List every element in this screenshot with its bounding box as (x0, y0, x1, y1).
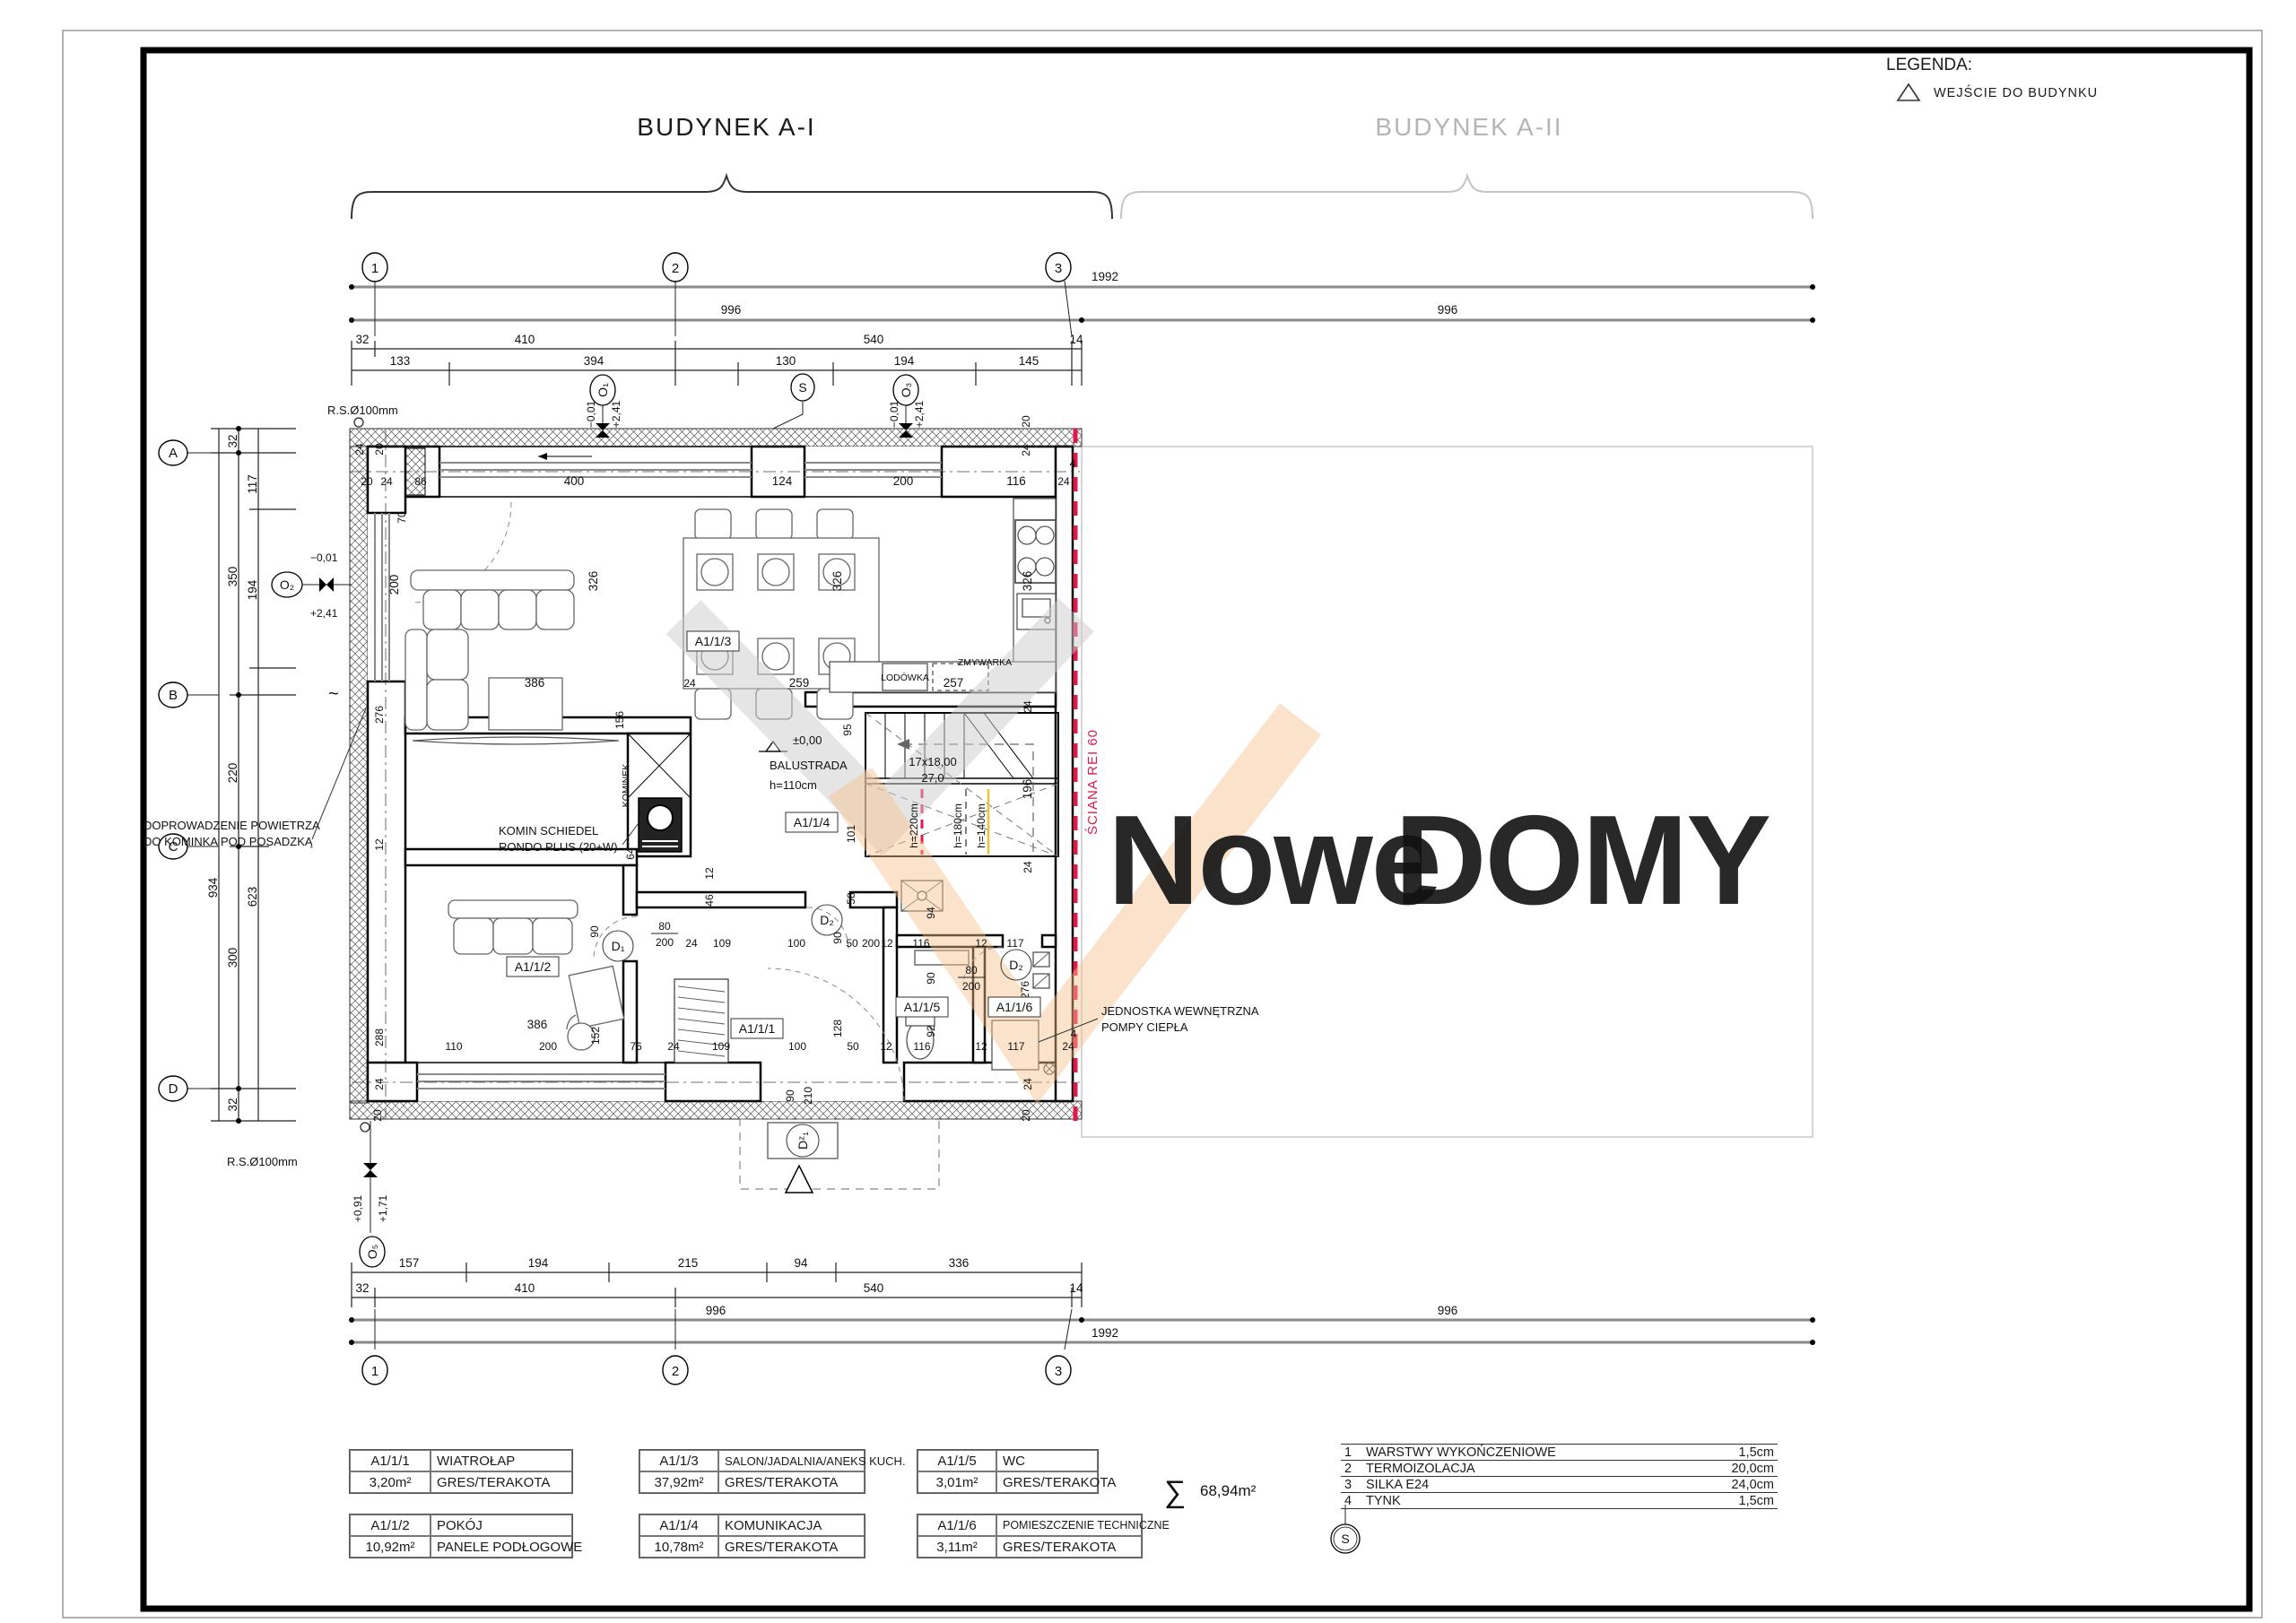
dim-label: 24 (1022, 700, 1034, 713)
room-table-a114: A1/1/4 KOMUNIKACJA 10,78m² GRES/TERAKOTA (639, 1514, 865, 1558)
window-marker-o1: O₁ (596, 383, 610, 397)
dim-label: 336 (949, 1256, 970, 1270)
room-area: 3,11m² (918, 1536, 996, 1558)
level-label: −0,01 (310, 551, 338, 564)
layer-value: 1,5cm (1711, 1445, 1778, 1460)
room-code: A1/1/2 (350, 1515, 430, 1536)
building-a2-title: BUDYNEK A-II (1290, 113, 1648, 142)
dim-label: 116 (912, 937, 929, 950)
door-marker-d2b: D₂ (1009, 958, 1023, 972)
dim-label: 288 (373, 1028, 386, 1046)
room-floor: GRES/TERAKOTA (996, 1471, 1098, 1493)
watermark-text-orange: DOMY (1395, 789, 1770, 932)
dim-label: 90 (831, 932, 844, 944)
door-marker-dz1: Dᶻ₁ (796, 1132, 810, 1150)
dim-label: 24 (1057, 475, 1070, 488)
dim-label: 157 (399, 1256, 420, 1270)
dim-label: 50 (846, 937, 858, 950)
dim-label: 152 (589, 1027, 602, 1045)
layer-value: 24,0cm (1711, 1478, 1778, 1492)
dishwasher-label: ZMYWARKA (958, 657, 1012, 668)
dim-label: 12 (975, 937, 987, 950)
dim-label: 101 (845, 825, 857, 843)
dim-label: 200 (893, 474, 914, 488)
room-label-a112: A1/1/2 (515, 959, 552, 974)
section-marker-s-bottom: S (1341, 1532, 1349, 1546)
dim-label: 623 (246, 887, 259, 907)
layer-name: TYNK (1366, 1494, 1711, 1508)
dim-label: 386 (525, 676, 545, 690)
dim-label: 20 (1020, 1109, 1032, 1122)
dim-label: 1992 (1091, 1326, 1118, 1340)
dim-label: 14 (1069, 1281, 1083, 1295)
level-label: +0,91 (352, 1194, 364, 1222)
dim-label: 90 (925, 972, 937, 985)
room-code: A1/1/1 (350, 1450, 430, 1471)
dim-label: 300 (226, 948, 239, 968)
dim-label: 70 (396, 511, 408, 524)
legend-title: LEGENDA: (1886, 56, 1972, 75)
dim-label: 110 (445, 1040, 462, 1053)
room-floor: GRES/TERAKOTA (430, 1471, 572, 1493)
dim-label: 996 (706, 1304, 726, 1317)
dim-label: 12 (975, 1040, 987, 1053)
room-name: KOMUNIKACJA (718, 1515, 865, 1536)
layer-row: 3 SILKA E24 24,0cm (1341, 1476, 1778, 1492)
dim-label: 12 (373, 838, 386, 851)
room-name: SALON/JADALNIA/ANEKS KUCH. (718, 1450, 865, 1471)
dim-label: 124 (772, 474, 793, 488)
dim-label: 130 (776, 354, 796, 368)
axis-col-3: 3 (1055, 261, 1062, 276)
layer-value: 1,5cm (1711, 1494, 1778, 1508)
door-marker-d2a: D₂ (820, 913, 834, 927)
window-marker-o2: O₂ (280, 577, 294, 592)
dim-label: 133 (390, 354, 411, 368)
watermark-text-gray: Nowe (1108, 789, 1440, 932)
dim-label: 32 (355, 333, 369, 346)
level-label: +1,71 (377, 1194, 389, 1222)
dim-label: 276 (373, 706, 386, 724)
dim-label: 996 (1438, 303, 1458, 317)
rei-wall-label: ŚCIANA REI 60 (1084, 729, 1100, 835)
layer-row: 4 TYNK 1,5cm (1341, 1492, 1778, 1509)
dim-label: 540 (864, 1281, 884, 1295)
dim-label: 90 (784, 1089, 796, 1102)
dim-label: 200 (387, 575, 401, 595)
kominek-label: KOMINEK (621, 764, 631, 807)
axis-col-3b: 3 (1055, 1364, 1062, 1379)
air-supply-note-line1: DOPROWADZENIE POWIETRZA (143, 819, 320, 832)
dim-label: 24 (1022, 861, 1034, 873)
legend-triangle-icon (1891, 79, 1926, 106)
layer-row: 2 TERMOIZOLACJA 20,0cm (1341, 1460, 1778, 1476)
dim-label: 100 (788, 1040, 806, 1053)
axis-row-d: D (169, 1081, 178, 1097)
dim-label: 20 (1020, 415, 1032, 428)
dim-label: 200 (656, 936, 674, 949)
legend-entry: WEJŚCIE DO BUDYNKU (1934, 86, 2098, 100)
room-code: A1/1/5 (918, 1450, 996, 1471)
dim-label: 24 (380, 475, 393, 488)
dim-label: 20 (371, 1109, 384, 1122)
layer-name: WARSTWY WYKOŃCZENIOWE (1366, 1445, 1711, 1460)
dim-label: 386 (527, 1018, 548, 1031)
dim-label: 276 (1019, 981, 1031, 999)
room-floor: GRES/TERAKOTA (718, 1536, 865, 1558)
headroom-180: h=180cm (952, 803, 964, 848)
dim-label: 86 (414, 475, 427, 488)
dim-label: 220 (226, 763, 239, 784)
dim-label: 934 (206, 877, 220, 898)
layer-no: 4 (1341, 1494, 1366, 1508)
room-label-a116: A1/1/6 (996, 1000, 1033, 1014)
dim-label: 46 (703, 894, 716, 907)
dim-label: 194 (894, 354, 915, 368)
dim-label: 996 (721, 303, 742, 317)
komin-note-line1: KOMIN SCHIEDEL (499, 824, 598, 838)
komin-note-line2: RONDO PLUS (20+W) (499, 840, 618, 854)
room-table-a116: A1/1/6 POMIESZCZENIE TECHNICZNE 3,11m² G… (917, 1514, 1143, 1558)
entrance-triangle-icon (786, 1166, 813, 1193)
room-label-a114: A1/1/4 (794, 815, 831, 829)
axis-col-1: 1 (371, 261, 378, 276)
layer-name: SILKA E24 (1366, 1478, 1711, 1492)
dim-label: 116 (1006, 474, 1026, 488)
room-floor: GRES/TERAKOTA (718, 1471, 865, 1493)
level-label: +2,41 (310, 607, 338, 620)
dim-label: 996 (1438, 1304, 1458, 1317)
dim-label: 80 (965, 964, 978, 976)
dim-label: 58 (845, 892, 857, 905)
room-name: WC (996, 1450, 1098, 1471)
room-table-a115: A1/1/5 WC 3,01m² GRES/TERAKOTA (917, 1449, 1099, 1494)
air-supply-note-line2: DO KOMINKA POD POSADZKĄ (143, 835, 313, 848)
layer-no: 1 (1341, 1445, 1366, 1460)
fridge-label: LODÓWKA (881, 672, 929, 683)
dim-label: 20 (373, 443, 386, 456)
dim-label: 259 (789, 676, 810, 690)
layer-value: 20,0cm (1711, 1462, 1778, 1476)
balustrada-height: h=110cm (770, 778, 817, 792)
axis-row-b: B (169, 688, 178, 703)
entrance (740, 1119, 939, 1193)
brace-building-a2 (1121, 176, 1813, 219)
dim-label: 350 (226, 567, 239, 587)
dim-label: 32 (226, 1098, 239, 1111)
dim-label: 410 (515, 1281, 535, 1295)
dim-label: 194 (246, 579, 259, 600)
door-marker-d1: D₁ (612, 939, 625, 953)
room-table-a113: A1/1/3 SALON/JADALNIA/ANEKS KUCH. 37,92m… (639, 1449, 865, 1494)
dim-label: 24 (373, 1078, 386, 1090)
balustrada-label: BALUSTRADA (770, 759, 848, 772)
dim-label: 24 (1022, 1078, 1034, 1090)
total-area: 68,94m² (1200, 1482, 1257, 1499)
dim-label: 24 (685, 937, 698, 950)
dim-label: 100 (787, 937, 805, 950)
dim-label: 4 (1070, 457, 1076, 470)
level-label: −0,01 (585, 400, 597, 428)
room-area: 10,92m² (350, 1536, 430, 1558)
axis-row-a: A (169, 446, 178, 461)
level-label: −0,01 (888, 400, 900, 428)
brace-building-a1 (352, 176, 1112, 219)
dim-label: 394 (584, 354, 604, 368)
rs-pipe-label-top: R.S.Ø100mm (327, 404, 398, 417)
dim-label: 76 (630, 1040, 642, 1053)
dim-label: 64 (624, 847, 637, 860)
dim-label: 540 (864, 333, 884, 346)
section-marker-s-top: S (798, 380, 806, 395)
dim-label: 109 (713, 937, 731, 950)
room-code: A1/1/3 (639, 1450, 718, 1471)
room-code: A1/1/6 (918, 1515, 996, 1536)
dim-label: 200 (862, 937, 880, 950)
room-name: WIATROŁAP (430, 1450, 572, 1471)
axis-col-1b: 1 (371, 1364, 378, 1379)
dim-label: 156 (613, 711, 626, 729)
room-area: 10,78m² (639, 1536, 718, 1558)
dim-label: 257 (944, 676, 964, 690)
building-a1-title: BUDYNEK A-I (547, 113, 906, 142)
rs-pipe-label-bottom: R.S.Ø100mm (227, 1155, 298, 1168)
wall-layers-table: 1 WARSTWY WYKOŃCZENIOWE 1,5cm 2 TERMOIZO… (1341, 1444, 1778, 1509)
dim-label: 92 (925, 1025, 937, 1037)
dim-label: 200 (962, 980, 980, 993)
dim-label: 215 (678, 1256, 699, 1270)
room-area: 37,92m² (639, 1471, 718, 1493)
dim-label: 200 (539, 1040, 557, 1053)
level-label: +2,41 (610, 400, 622, 428)
sum-symbol: ∑ (1164, 1475, 1186, 1509)
dim-label: 20 (361, 475, 373, 488)
room-table-a111: A1/1/1 WIATROŁAP 3,20m² GRES/TERAKOTA (349, 1449, 573, 1494)
stairs-count: 17x18,00 (909, 755, 957, 768)
room-table-a112: A1/1/2 POKÓJ 10,92m² PANELE PODŁOGOWE (349, 1514, 573, 1558)
headroom-220: h=220cm (908, 803, 920, 848)
dim-label: 117 (1007, 1040, 1024, 1053)
dim-label: 326 (587, 571, 600, 592)
layer-no: 2 (1341, 1462, 1366, 1476)
dim-label: 117 (1006, 937, 1023, 950)
dim-label: 24 (1062, 1040, 1074, 1053)
dim-label: 210 (802, 1087, 814, 1105)
layer-row: 1 WARSTWY WYKOŃCZENIOWE 1,5cm (1341, 1444, 1778, 1460)
dim-label: 24 (353, 443, 366, 456)
window-marker-o5: O₅ (365, 1245, 379, 1260)
layer-no: 3 (1341, 1478, 1366, 1492)
dim-label: 109 (712, 1040, 730, 1053)
room-floor: PANELE PODŁOGOWE (430, 1536, 572, 1558)
layer-name: TERMOIZOLACJA (1366, 1462, 1711, 1476)
dim-label: 32 (226, 434, 239, 447)
zero-level-label: ±0,00 (793, 733, 822, 747)
dim-label: 12 (881, 937, 893, 950)
floor-plan-canvas: Nowe DOMY (0, 0, 2296, 1623)
axis-col-2b: 2 (672, 1364, 679, 1379)
dim-label: 32 (355, 1281, 369, 1295)
window-marker-o3: O₃ (899, 383, 913, 398)
room-floor: GRES/TERAKOTA (996, 1536, 1142, 1558)
dim-label: 194 (528, 1256, 549, 1270)
dim-label: 128 (831, 1020, 844, 1037)
dim-label: 117 (246, 474, 259, 494)
heat-pump-note-line1: JEDNOSTKA WEWNĘTRZNA (1101, 1004, 1259, 1018)
room-label-a113: A1/1/3 (695, 634, 732, 648)
dim-label: 116 (913, 1040, 930, 1053)
dim-label: 24 (1020, 444, 1032, 456)
dim-label: 196 (1021, 779, 1034, 800)
dim-label: 94 (925, 907, 937, 919)
dim-label: 410 (515, 333, 535, 346)
dim-label: 24 (667, 1040, 680, 1053)
drawing-page: Nowe DOMY (0, 0, 2296, 1623)
dim-label: 50 (847, 1040, 859, 1053)
dim-label: 400 (564, 474, 585, 488)
room-label-a115: A1/1/5 (904, 1000, 941, 1014)
level-label: +2,41 (913, 400, 926, 428)
room-area: 3,01m² (918, 1471, 996, 1493)
dim-label: 12 (880, 1040, 892, 1053)
dim-label: 90 (588, 925, 601, 938)
dim-label: 95 (841, 724, 854, 736)
dim-label: 4 (1071, 1028, 1077, 1040)
dim-label: 326 (831, 571, 844, 592)
dim-label: 94 (794, 1256, 808, 1270)
dim-label: 145 (1019, 354, 1039, 368)
room-code: A1/1/4 (639, 1515, 718, 1536)
dim-label: 14 (1069, 333, 1083, 346)
room-name: POMIESZCZENIE TECHNICZNE (996, 1515, 1142, 1536)
room-area: 3,20m² (350, 1471, 430, 1493)
heat-pump-note-line2: POMPY CIEPŁA (1101, 1020, 1188, 1034)
dim-label: 24 (683, 677, 696, 690)
tilde-symbol: ~ (328, 684, 339, 704)
axis-col-2: 2 (672, 261, 679, 276)
dim-label: 12 (703, 867, 716, 880)
dim-label: 1992 (1091, 270, 1118, 283)
dim-label: 80 (658, 920, 671, 933)
dim-label: 326 (1021, 571, 1034, 592)
stairs-width: 27,0 (921, 771, 944, 785)
room-label-a111: A1/1/1 (739, 1021, 776, 1036)
room-name: POKÓJ (430, 1515, 572, 1536)
headroom-140: h=140cm (975, 803, 987, 848)
